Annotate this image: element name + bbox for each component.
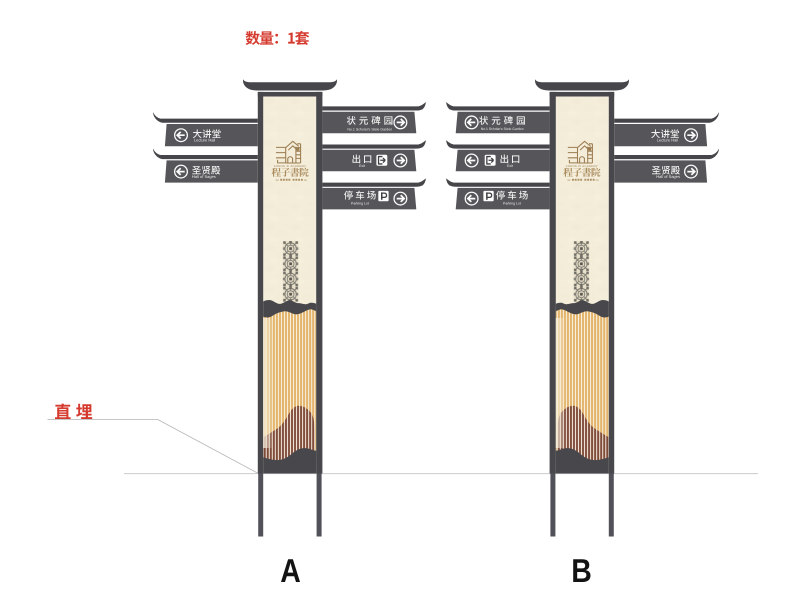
svg-text:Lecture Hall: Lecture Hall bbox=[657, 138, 678, 143]
svg-text:Parking Lot: Parking Lot bbox=[351, 202, 369, 206]
svg-text:Hall of Sages: Hall of Sages bbox=[656, 174, 680, 179]
svg-text:CHENG ZI ACADEMY: CHENG ZI ACADEMY bbox=[566, 165, 598, 168]
svg-text:No.1 Scholar's Stele Garden: No.1 Scholar's Stele Garden bbox=[481, 127, 524, 131]
svg-text:Exit: Exit bbox=[359, 164, 365, 168]
svg-text:Hall of Sages: Hall of Sages bbox=[192, 174, 216, 179]
svg-text:Lecture Hall: Lecture Hall bbox=[194, 138, 215, 143]
svg-text:Parking Lot: Parking Lot bbox=[503, 202, 521, 206]
svg-text:No.1 Scholar's Stele Garden: No.1 Scholar's Stele Garden bbox=[347, 128, 392, 132]
svg-text:CHENG ZI ACADEMY: CHENG ZI ACADEMY bbox=[274, 165, 306, 168]
svg-text:Exit: Exit bbox=[507, 164, 513, 168]
